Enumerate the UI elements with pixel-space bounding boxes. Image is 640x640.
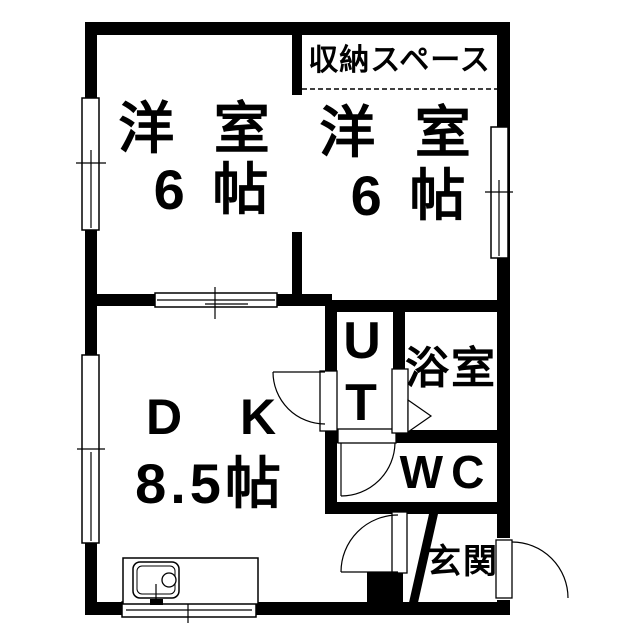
label-dk-size: 8.5帖 [131,456,285,512]
door-panel-dk-utility [320,371,337,431]
label-entrance: 玄関 [425,545,499,579]
drain-mark [150,599,163,605]
label-dk-name: D K [124,392,298,442]
mid-wall-left [97,294,158,306]
front-door-swing-arc [512,542,568,598]
label-west-room-left-size: 6 帖 [148,162,275,218]
bathroom-door-triangle [408,400,431,432]
utility-west-wall-upper [325,306,337,373]
mid-wall-center [276,294,332,306]
entrance-wall-block [367,572,403,607]
label-west-room-right-name: 洋 室 [307,105,483,161]
label-utility-u: U [343,315,381,367]
wc-bottom-wall [325,502,497,514]
outer-wall-right [497,22,510,615]
mid-wall-right [327,300,497,312]
label-west-room-right-size: 6 帖 [345,168,472,224]
wc-top-wall-stub [325,430,338,443]
label-toilet: WC [392,449,493,495]
room-divider-wall-upper [292,22,302,95]
door-swing-arc-dk-entrance [341,515,398,572]
door-panel-dk-entrance [392,512,407,573]
kitchen-sink [123,558,258,605]
label-utility-t: T [345,377,377,429]
label-storage: 収納スペース [307,46,490,76]
floor-plan: 収納スペース 洋 室 6 帖 洋 室 6 帖 D K 8.5帖 U T 浴室 W… [0,0,640,640]
floor-plan-drawing [0,0,640,640]
door-swing-arc-wc [341,443,395,496]
label-west-room-left-name: 洋 室 [106,101,282,157]
faucet-circle [162,573,176,587]
label-bathroom: 浴室 [403,347,497,391]
